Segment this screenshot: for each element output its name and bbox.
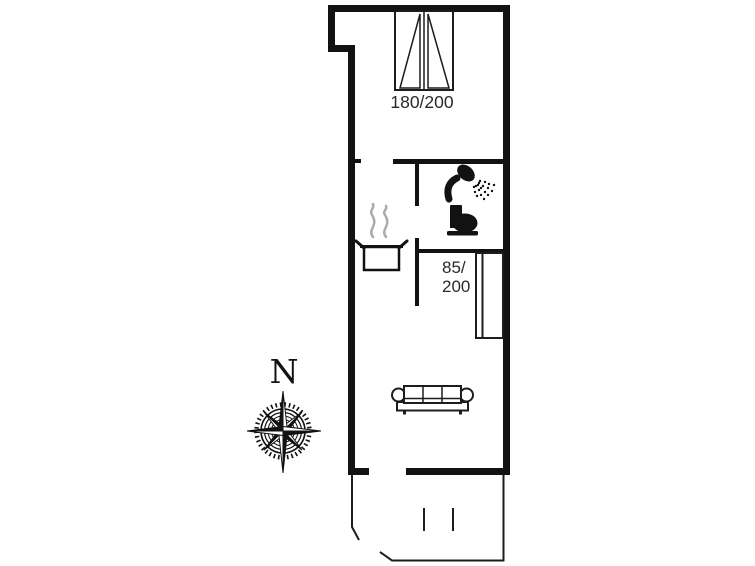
- sofa-foot-left: [403, 411, 406, 415]
- double-bed-size-label: 180/200: [390, 92, 454, 112]
- shower-spray-dots: [473, 180, 495, 200]
- wall-left-main: [348, 45, 355, 475]
- toilet-icon: [447, 205, 478, 236]
- steam-lines: [371, 204, 387, 237]
- shower-icon: [448, 161, 495, 200]
- sofa-icon: [392, 386, 473, 415]
- compass-north-label: N: [270, 352, 299, 391]
- bathroom-top-wall: [393, 159, 506, 164]
- compass-main-points: [247, 391, 321, 473]
- wall-left-upper: [328, 5, 335, 52]
- sofa-cushions: [404, 386, 461, 403]
- single-bed-size-label-line2: 200: [442, 277, 470, 296]
- sofa-foot-right: [459, 411, 462, 415]
- wall-bottom-left-stub: [348, 468, 369, 475]
- bathroom-left-wall-upper: [415, 159, 419, 206]
- bathroom-left-wall-lower: [415, 238, 419, 306]
- single-bed-icon: [476, 253, 503, 338]
- floor-plan-page: 180/200 85/ 200: [0, 0, 755, 566]
- wall-bottom-main: [406, 468, 510, 475]
- terrace-outline: [352, 475, 504, 561]
- wall-right: [503, 5, 510, 475]
- single-bed-size-label-line1: 85/: [442, 258, 466, 277]
- compass-rose-icon: N: [247, 352, 321, 473]
- bathroom-top-wall-stub: [355, 159, 361, 163]
- floor-plan-drawing: 180/200 85/ 200: [0, 0, 755, 566]
- cooking-pot-icon: [356, 204, 407, 270]
- double-bed-icon: [395, 11, 453, 90]
